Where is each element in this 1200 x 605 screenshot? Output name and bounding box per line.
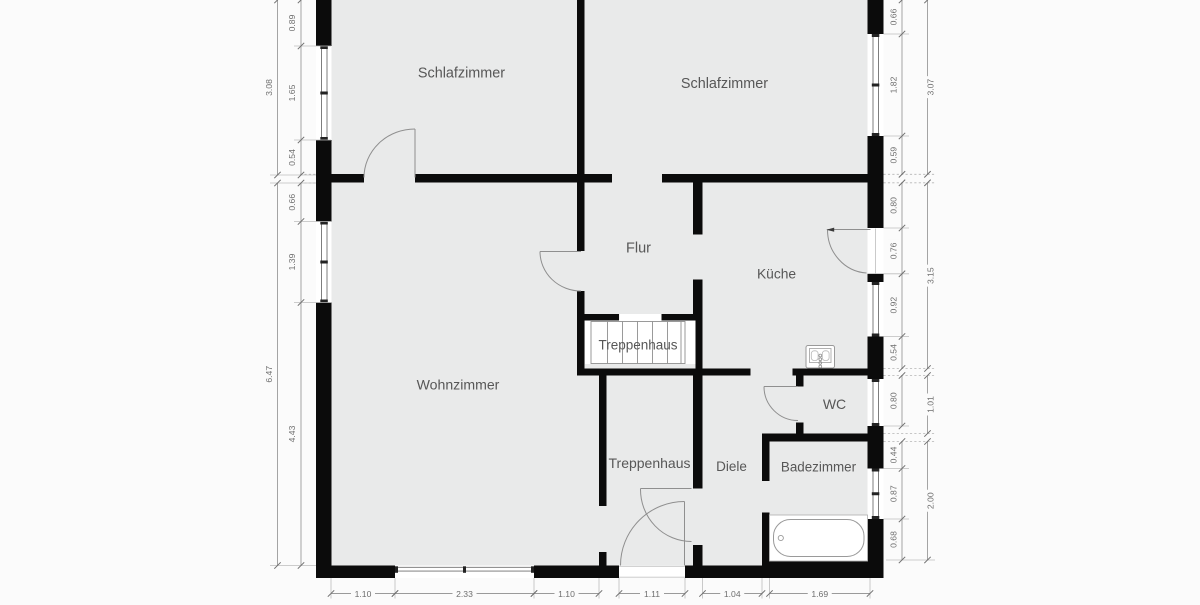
svg-text:3.08: 3.08 <box>264 79 274 96</box>
svg-text:1.39: 1.39 <box>287 253 297 270</box>
svg-text:0.59: 0.59 <box>889 147 899 164</box>
svg-text:WC: WC <box>823 396 846 412</box>
svg-text:2.00: 2.00 <box>926 492 936 509</box>
svg-text:Badezimmer: Badezimmer <box>781 460 857 475</box>
svg-text:4.43: 4.43 <box>287 425 297 442</box>
svg-text:0.76: 0.76 <box>889 242 899 259</box>
svg-text:0.54: 0.54 <box>889 344 899 361</box>
svg-text:0.89: 0.89 <box>287 14 297 31</box>
svg-text:0.92: 0.92 <box>889 297 899 314</box>
svg-text:1.01: 1.01 <box>926 396 936 413</box>
svg-text:Wohnzimmer: Wohnzimmer <box>417 377 500 393</box>
svg-text:0.80: 0.80 <box>889 197 899 214</box>
svg-text:0.80: 0.80 <box>889 392 899 409</box>
svg-text:1.04: 1.04 <box>724 589 741 599</box>
svg-text:Diele: Diele <box>716 459 747 474</box>
svg-text:0.54: 0.54 <box>287 149 297 166</box>
svg-text:6.47: 6.47 <box>264 366 274 383</box>
svg-text:3.15: 3.15 <box>926 267 936 284</box>
svg-text:2.33: 2.33 <box>456 589 473 599</box>
svg-text:1.11: 1.11 <box>644 589 660 599</box>
svg-text:1.10: 1.10 <box>355 589 372 599</box>
svg-text:1.10: 1.10 <box>558 589 575 599</box>
svg-text:1.65: 1.65 <box>287 84 297 101</box>
svg-text:Flur: Flur <box>626 241 651 257</box>
svg-text:Schlafzimmer: Schlafzimmer <box>418 66 505 82</box>
svg-text:Treppenhaus: Treppenhaus <box>598 338 677 353</box>
svg-text:1.69: 1.69 <box>811 589 828 599</box>
svg-text:0.87: 0.87 <box>889 485 899 502</box>
svg-text:Schlafzimmer: Schlafzimmer <box>681 76 768 92</box>
svg-text:Treppenhaus: Treppenhaus <box>609 455 691 471</box>
svg-text:0.66: 0.66 <box>889 8 899 25</box>
svg-text:0.66: 0.66 <box>287 194 297 211</box>
svg-text:0.68: 0.68 <box>889 531 899 548</box>
svg-text:1.82: 1.82 <box>889 76 899 93</box>
svg-text:Küche: Küche <box>757 267 796 282</box>
svg-text:3.07: 3.07 <box>926 79 936 96</box>
svg-text:0.44: 0.44 <box>889 446 899 463</box>
